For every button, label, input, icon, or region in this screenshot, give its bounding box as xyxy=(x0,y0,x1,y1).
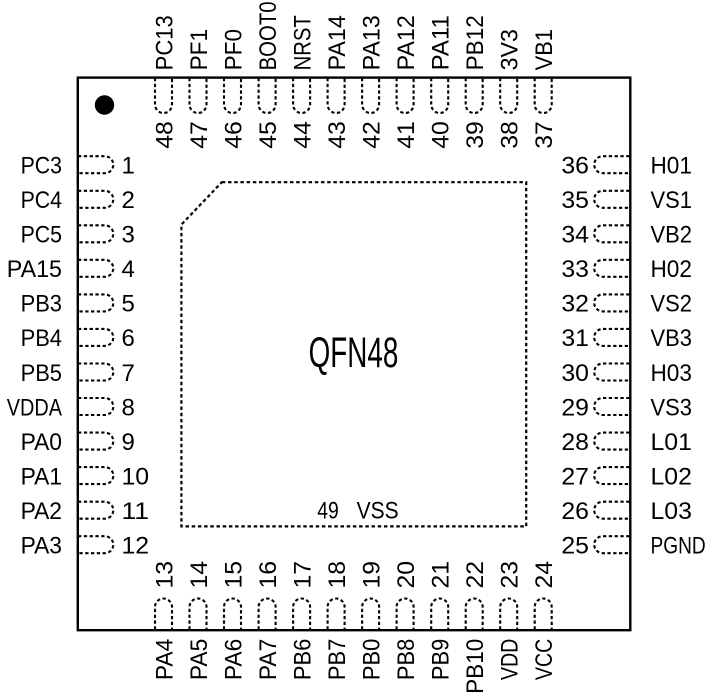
svg-text:VB3: VB3 xyxy=(651,325,692,352)
svg-text:PC4: PC4 xyxy=(21,187,62,214)
svg-text:10: 10 xyxy=(122,463,150,490)
svg-text:46: 46 xyxy=(220,121,247,149)
svg-text:3: 3 xyxy=(122,222,135,249)
svg-text:PA5: PA5 xyxy=(186,639,213,680)
svg-text:6: 6 xyxy=(122,325,135,352)
svg-text:16: 16 xyxy=(255,561,282,589)
svg-text:40: 40 xyxy=(428,121,455,149)
svg-text:3V3: 3V3 xyxy=(497,29,524,70)
svg-text:4: 4 xyxy=(122,256,135,283)
svg-text:24: 24 xyxy=(531,561,558,589)
svg-text:47: 47 xyxy=(186,121,213,149)
svg-text:23: 23 xyxy=(497,561,524,589)
svg-text:NRST: NRST xyxy=(289,15,316,70)
svg-text:VB1: VB1 xyxy=(531,29,558,70)
svg-text:PB10: PB10 xyxy=(462,639,489,694)
svg-text:PA1: PA1 xyxy=(21,463,62,490)
svg-text:L03: L03 xyxy=(651,498,692,525)
svg-text:32: 32 xyxy=(561,291,589,318)
svg-text:VS3: VS3 xyxy=(651,394,692,421)
svg-text:38: 38 xyxy=(497,121,524,149)
svg-text:39: 39 xyxy=(462,121,489,149)
svg-text:11: 11 xyxy=(122,498,150,525)
svg-text:PC13: PC13 xyxy=(151,15,178,70)
svg-text:QFN48: QFN48 xyxy=(309,328,399,377)
svg-text:34: 34 xyxy=(561,222,589,249)
svg-text:30: 30 xyxy=(561,360,589,387)
svg-text:PA3: PA3 xyxy=(21,533,62,560)
svg-text:VDD: VDD xyxy=(497,639,524,680)
svg-text:PB6: PB6 xyxy=(289,639,316,680)
svg-text:PA0: PA0 xyxy=(21,429,62,456)
svg-text:PA4: PA4 xyxy=(151,639,178,680)
svg-text:43: 43 xyxy=(324,121,351,149)
svg-text:27: 27 xyxy=(561,463,589,490)
svg-text:29: 29 xyxy=(561,394,589,421)
svg-text:PGND: PGND xyxy=(651,533,706,560)
svg-text:35: 35 xyxy=(561,187,589,214)
svg-text:49: 49 xyxy=(317,498,339,525)
svg-text:H03: H03 xyxy=(651,360,692,387)
svg-text:22: 22 xyxy=(462,561,489,589)
svg-text:PA14: PA14 xyxy=(324,15,351,70)
svg-text:PF1: PF1 xyxy=(186,29,213,70)
svg-text:PB0: PB0 xyxy=(358,639,385,680)
svg-text:48: 48 xyxy=(151,121,178,149)
svg-text:17: 17 xyxy=(289,561,316,589)
svg-text:PA15: PA15 xyxy=(7,256,62,283)
svg-text:9: 9 xyxy=(122,429,135,456)
svg-text:L01: L01 xyxy=(651,429,692,456)
svg-text:PB5: PB5 xyxy=(21,360,62,387)
svg-text:L02: L02 xyxy=(651,463,692,490)
svg-text:PF0: PF0 xyxy=(220,29,247,70)
svg-text:5: 5 xyxy=(122,291,135,318)
svg-text:31: 31 xyxy=(561,325,589,352)
svg-text:PA7: PA7 xyxy=(255,639,282,680)
svg-text:PA11: PA11 xyxy=(428,15,455,70)
svg-text:26: 26 xyxy=(561,498,589,525)
svg-text:VDDA: VDDA xyxy=(7,394,62,421)
svg-text:VSS: VSS xyxy=(357,498,399,525)
svg-text:42: 42 xyxy=(358,121,385,149)
svg-text:14: 14 xyxy=(186,561,213,589)
svg-text:PB7: PB7 xyxy=(324,639,351,680)
svg-text:PA13: PA13 xyxy=(358,15,385,70)
svg-text:33: 33 xyxy=(561,256,589,283)
svg-text:PB12: PB12 xyxy=(462,15,489,70)
svg-text:PA12: PA12 xyxy=(393,15,420,70)
svg-text:15: 15 xyxy=(220,561,247,589)
svg-text:8: 8 xyxy=(122,394,135,421)
svg-text:2: 2 xyxy=(122,187,135,214)
svg-text:VB2: VB2 xyxy=(651,222,692,249)
svg-text:BOOT0: BOOT0 xyxy=(255,1,282,70)
svg-text:21: 21 xyxy=(428,561,455,589)
svg-text:PC5: PC5 xyxy=(21,222,62,249)
svg-text:18: 18 xyxy=(324,561,351,589)
svg-text:44: 44 xyxy=(289,121,316,149)
svg-text:PB4: PB4 xyxy=(21,325,62,352)
svg-text:PB9: PB9 xyxy=(428,639,455,680)
svg-text:VS1: VS1 xyxy=(651,187,692,214)
svg-text:41: 41 xyxy=(393,121,420,149)
svg-text:25: 25 xyxy=(561,533,589,560)
svg-text:45: 45 xyxy=(255,121,282,149)
svg-text:37: 37 xyxy=(531,121,558,149)
svg-text:H01: H01 xyxy=(651,153,692,180)
svg-text:13: 13 xyxy=(151,561,178,589)
svg-text:PB8: PB8 xyxy=(393,639,420,680)
svg-text:12: 12 xyxy=(122,533,150,560)
svg-text:28: 28 xyxy=(561,429,589,456)
svg-text:VS2: VS2 xyxy=(651,291,692,318)
svg-text:H02: H02 xyxy=(651,256,692,283)
svg-text:7: 7 xyxy=(122,360,135,387)
svg-text:36: 36 xyxy=(561,153,589,180)
svg-text:19: 19 xyxy=(358,561,385,589)
svg-text:VCC: VCC xyxy=(531,639,558,680)
svg-text:PA2: PA2 xyxy=(21,498,62,525)
svg-text:PC3: PC3 xyxy=(21,153,62,180)
svg-text:1: 1 xyxy=(122,153,135,180)
svg-text:PB3: PB3 xyxy=(21,291,62,318)
svg-text:PA6: PA6 xyxy=(220,639,247,680)
svg-text:20: 20 xyxy=(393,561,420,589)
